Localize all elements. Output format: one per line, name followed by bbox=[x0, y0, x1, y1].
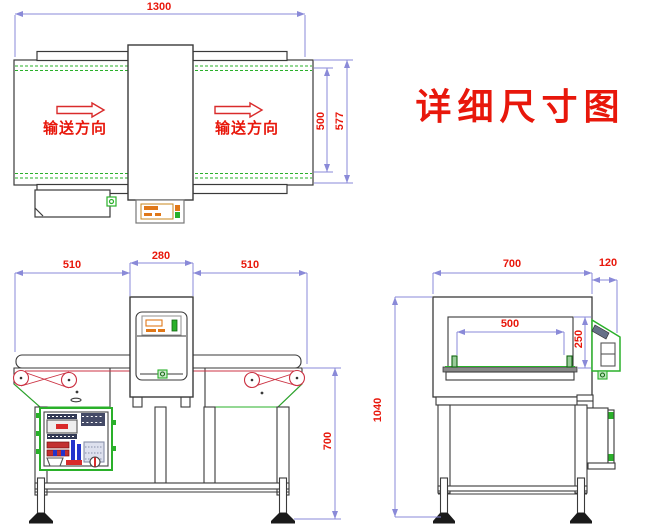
direction-label-right: 输送方向 bbox=[209, 121, 285, 137]
dim-outfeed-label: 510 bbox=[228, 259, 272, 271]
rail-tab bbox=[193, 52, 287, 61]
side-stand bbox=[433, 405, 592, 524]
side-view-drawing bbox=[433, 297, 620, 524]
electrical-control-box bbox=[36, 408, 116, 470]
leveling-foot bbox=[570, 513, 592, 521]
dim-belt-width-label: 500 bbox=[315, 101, 327, 141]
dim-aperture-width-label: 500 bbox=[488, 318, 532, 330]
dim-700-side-line bbox=[433, 273, 592, 294]
belt-guide-post bbox=[452, 356, 457, 367]
dim-infeed-label: 510 bbox=[50, 259, 94, 271]
top-motor-housing bbox=[35, 190, 116, 217]
rail-tab bbox=[193, 185, 287, 194]
dim-belt-height-label: 700 bbox=[322, 421, 334, 461]
dim-510-left-line bbox=[15, 273, 130, 352]
dim-overall-width-label: 577 bbox=[334, 101, 346, 141]
side-control-head bbox=[592, 320, 620, 379]
page-title: 详细尺寸图 bbox=[403, 84, 638, 130]
belt-clamp bbox=[158, 370, 167, 378]
rail-tab bbox=[37, 52, 128, 61]
dim-total-height-label: 1040 bbox=[372, 385, 384, 435]
leveling-foot bbox=[29, 513, 53, 521]
dim-280-line bbox=[130, 263, 193, 296]
dim-detector-width-label: 280 bbox=[139, 250, 183, 262]
dim-panel-depth-label: 120 bbox=[592, 257, 624, 269]
leveling-foot bbox=[271, 513, 295, 521]
dim-aperture-height-label: 250 bbox=[573, 319, 585, 359]
dimension-drawing-sheet: 详细尺寸图 1300 500 577 输送方向 输送方向 510 280 510… bbox=[0, 0, 650, 530]
dim-510-right-line bbox=[193, 273, 307, 364]
direction-label-left: 输送方向 bbox=[37, 121, 113, 137]
front-view-drawing bbox=[14, 297, 305, 524]
dim-top-length-label: 1300 bbox=[137, 1, 181, 13]
top-detector-head bbox=[128, 45, 193, 200]
dim-depth-label: 700 bbox=[490, 258, 534, 270]
front-detector-head bbox=[130, 297, 193, 397]
belt-guide-post bbox=[567, 356, 572, 367]
top-control-panel bbox=[136, 200, 184, 223]
